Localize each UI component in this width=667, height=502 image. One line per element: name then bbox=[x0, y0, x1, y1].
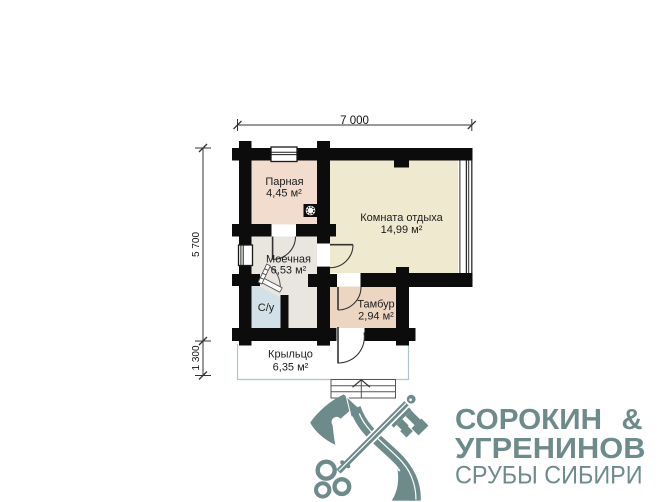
svg-text:5 700: 5 700 bbox=[191, 232, 202, 257]
svg-text:Крыльцо: Крыльцо bbox=[268, 349, 313, 361]
svg-text:4,45 м²: 4,45 м² bbox=[266, 188, 302, 200]
svg-text:С/у: С/у bbox=[258, 302, 275, 314]
svg-text:1 300: 1 300 bbox=[191, 345, 202, 370]
svg-text:СРУБЫ СИБИРИ: СРУБЫ СИБИРИ bbox=[455, 462, 643, 490]
svg-text:Парная: Парная bbox=[265, 176, 303, 188]
svg-text:УГРЕНИНОВ: УГРЕНИНОВ bbox=[455, 433, 646, 465]
svg-text:7 000: 7 000 bbox=[340, 115, 369, 127]
svg-text:6,35 м²: 6,35 м² bbox=[273, 362, 309, 374]
svg-text:2,94 м²: 2,94 м² bbox=[358, 310, 394, 322]
svg-text:14,99 м²: 14,99 м² bbox=[381, 224, 423, 236]
svg-text:Тамбур: Тамбур bbox=[357, 298, 394, 310]
svg-text:Комната отдыха: Комната отдыха bbox=[360, 212, 443, 224]
svg-text:&: & bbox=[622, 404, 643, 436]
svg-text:СОРОКИН: СОРОКИН bbox=[455, 404, 602, 436]
svg-text:6,53 м²: 6,53 м² bbox=[271, 264, 307, 276]
